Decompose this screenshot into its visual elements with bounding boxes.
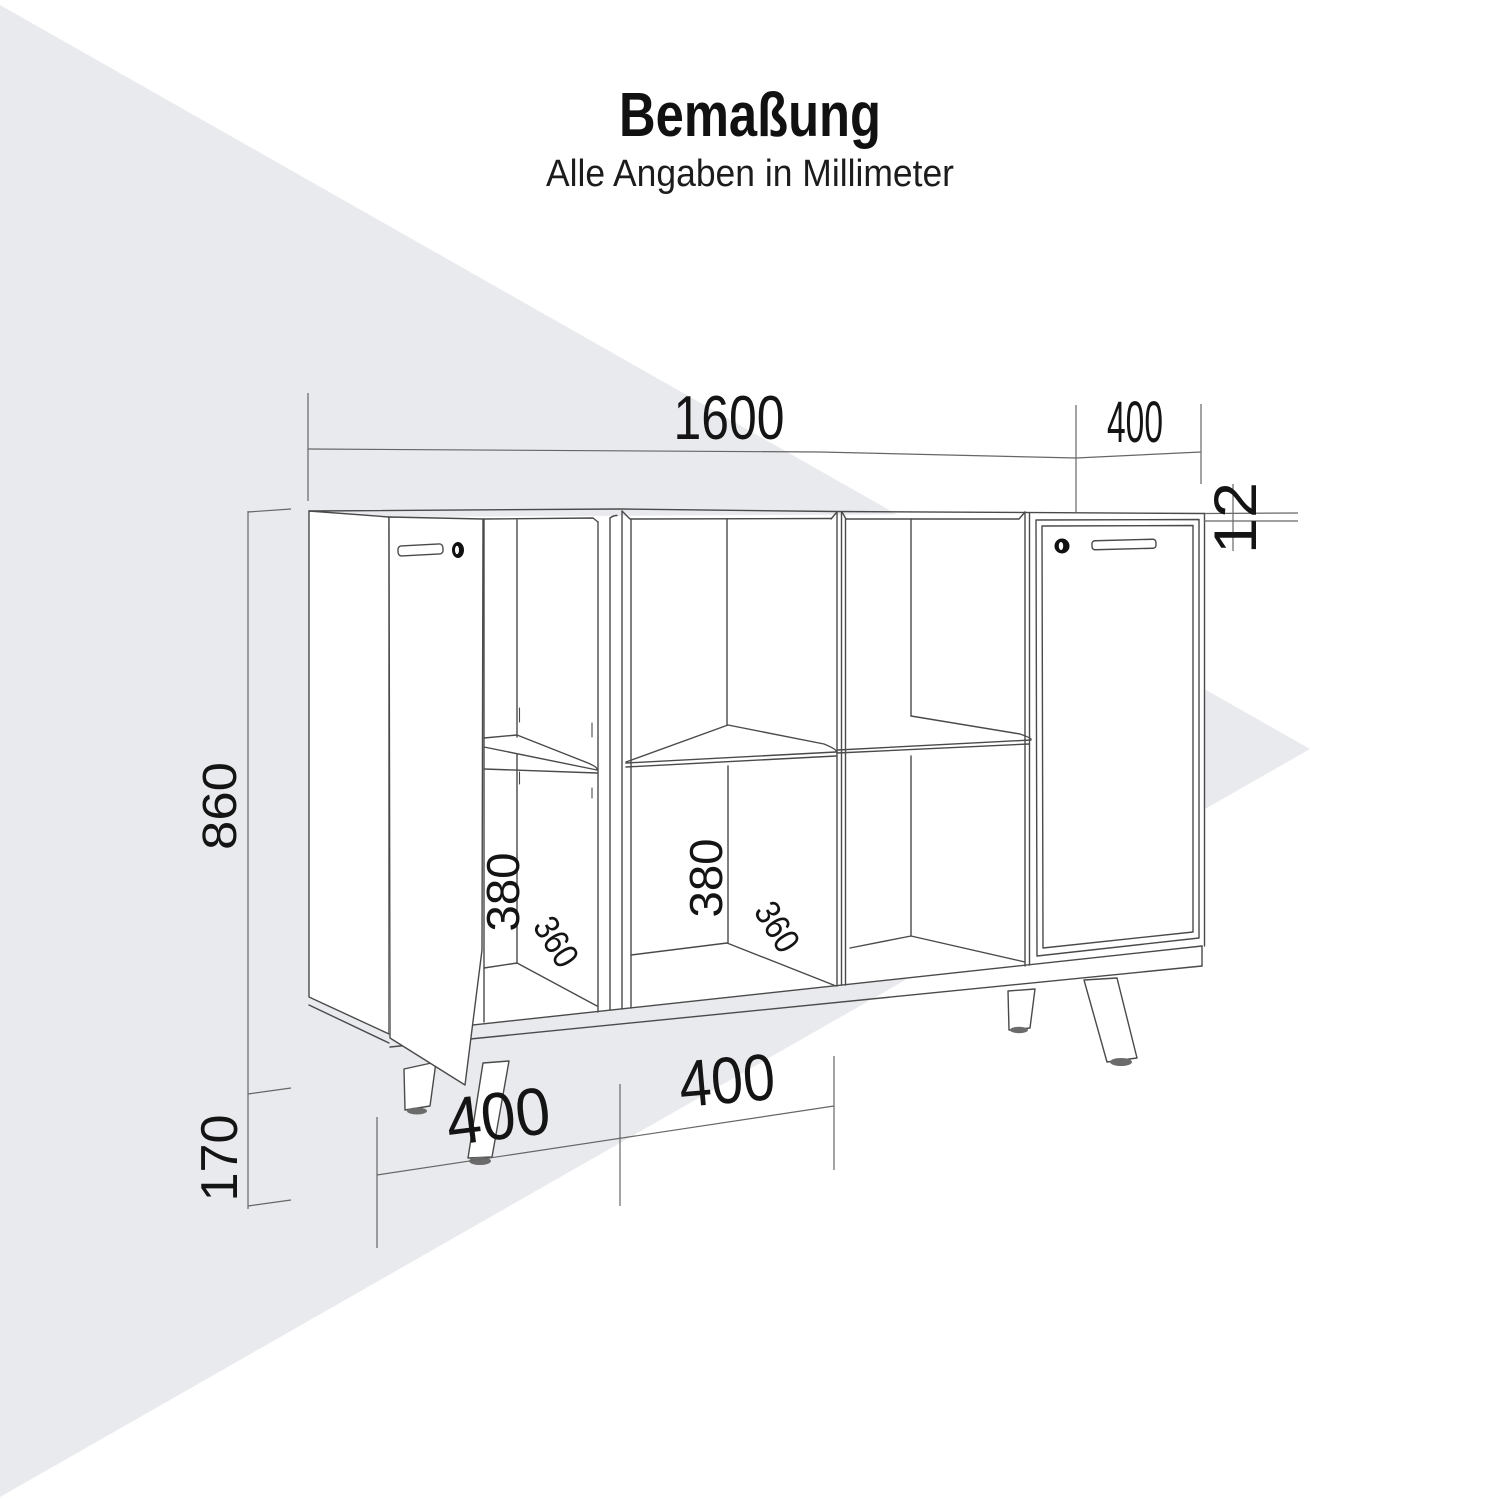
svg-text:Alle Angaben in Millimeter: Alle Angaben in Millimeter [546, 153, 954, 195]
svg-text:1600: 1600 [674, 384, 785, 453]
svg-text:400: 400 [1107, 390, 1163, 455]
svg-text:400: 400 [442, 1073, 554, 1160]
svg-text:860: 860 [193, 762, 247, 850]
svg-text:170: 170 [191, 1115, 249, 1202]
svg-text:Bemaßung: Bemaßung [619, 81, 881, 150]
svg-text:380: 380 [477, 853, 529, 932]
svg-text:12: 12 [1202, 482, 1269, 554]
svg-text:380: 380 [680, 839, 732, 918]
svg-text:400: 400 [676, 1039, 778, 1121]
